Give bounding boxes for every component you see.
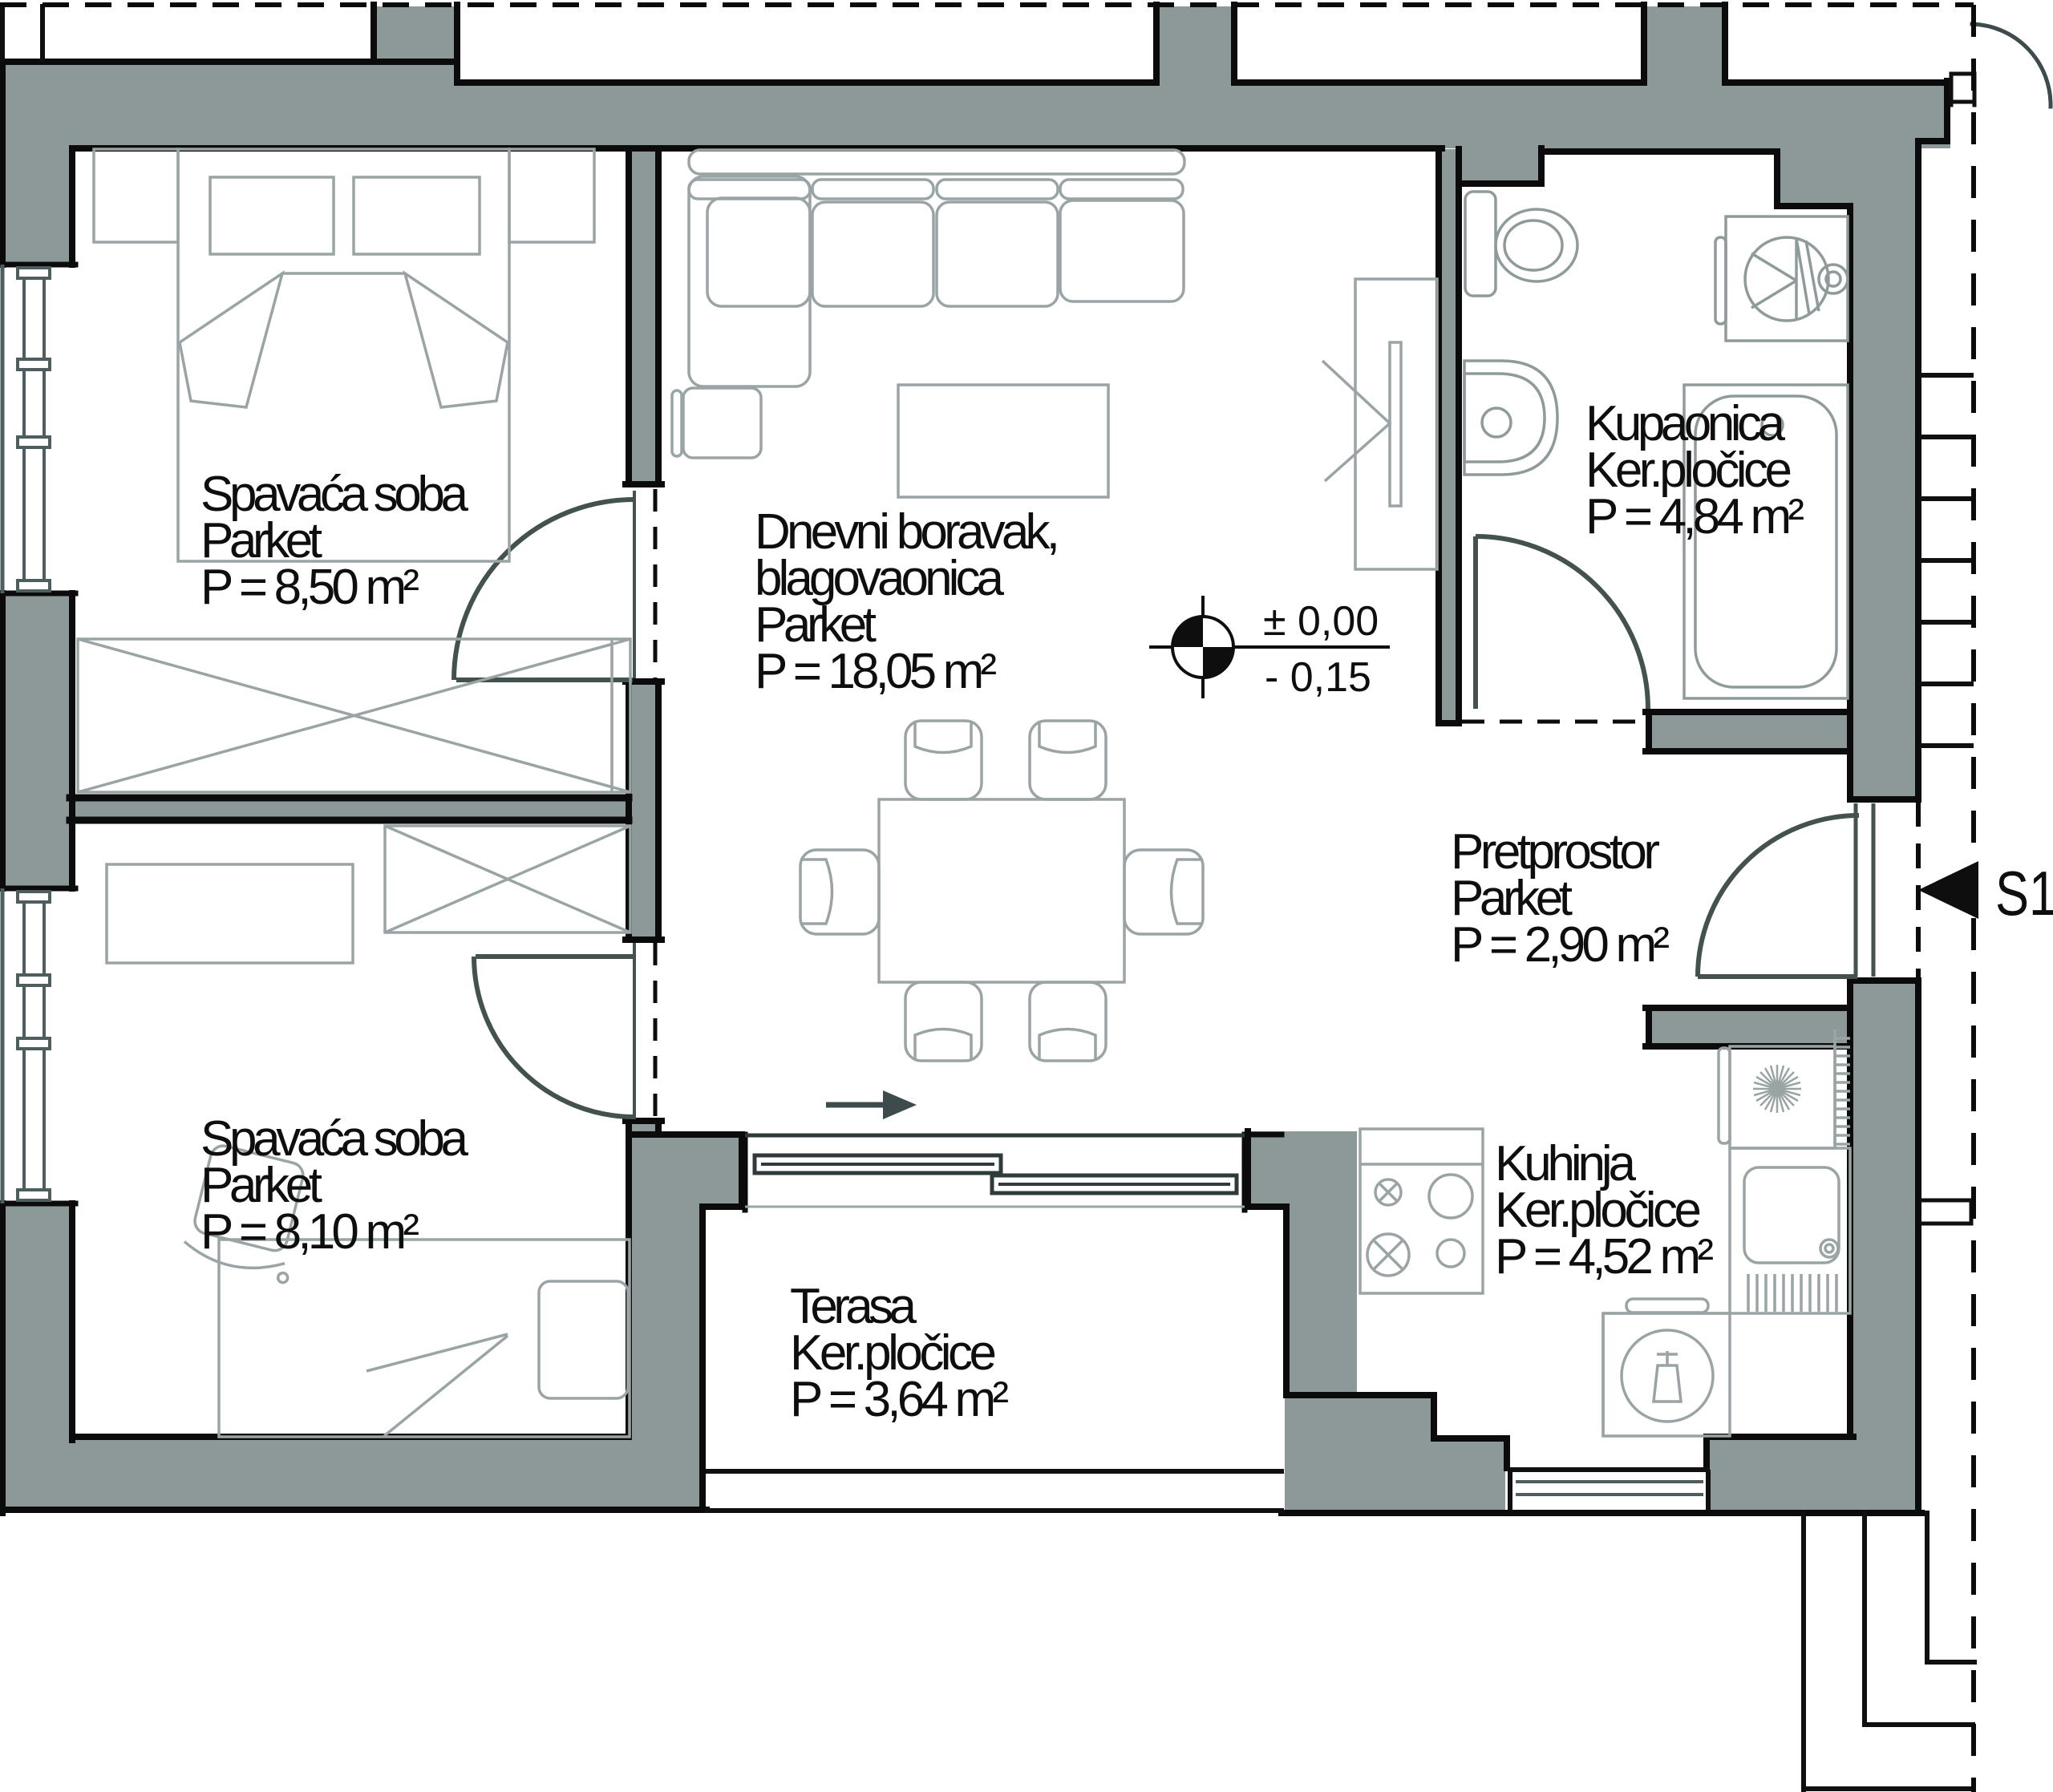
svg-text:P = 3,64 m²: P = 3,64 m² (790, 1372, 1009, 1427)
svg-text:P = 8,10 m²: P = 8,10 m² (200, 1204, 419, 1260)
svg-text:- 0,15: - 0,15 (1265, 654, 1371, 701)
svg-text:P = 8,50 m²: P = 8,50 m² (200, 560, 419, 615)
svg-text:± 0,00: ± 0,00 (1263, 598, 1379, 645)
svg-text:P = 18,05 m²: P = 18,05 m² (755, 644, 997, 699)
svg-text:P = 2,90 m²: P = 2,90 m² (1451, 917, 1670, 973)
svg-text:P = 4,84 m²: P = 4,84 m² (1585, 489, 1804, 544)
svg-text:P = 4,52 m²: P = 4,52 m² (1495, 1229, 1714, 1284)
svg-text:S1: S1 (1995, 858, 2053, 928)
